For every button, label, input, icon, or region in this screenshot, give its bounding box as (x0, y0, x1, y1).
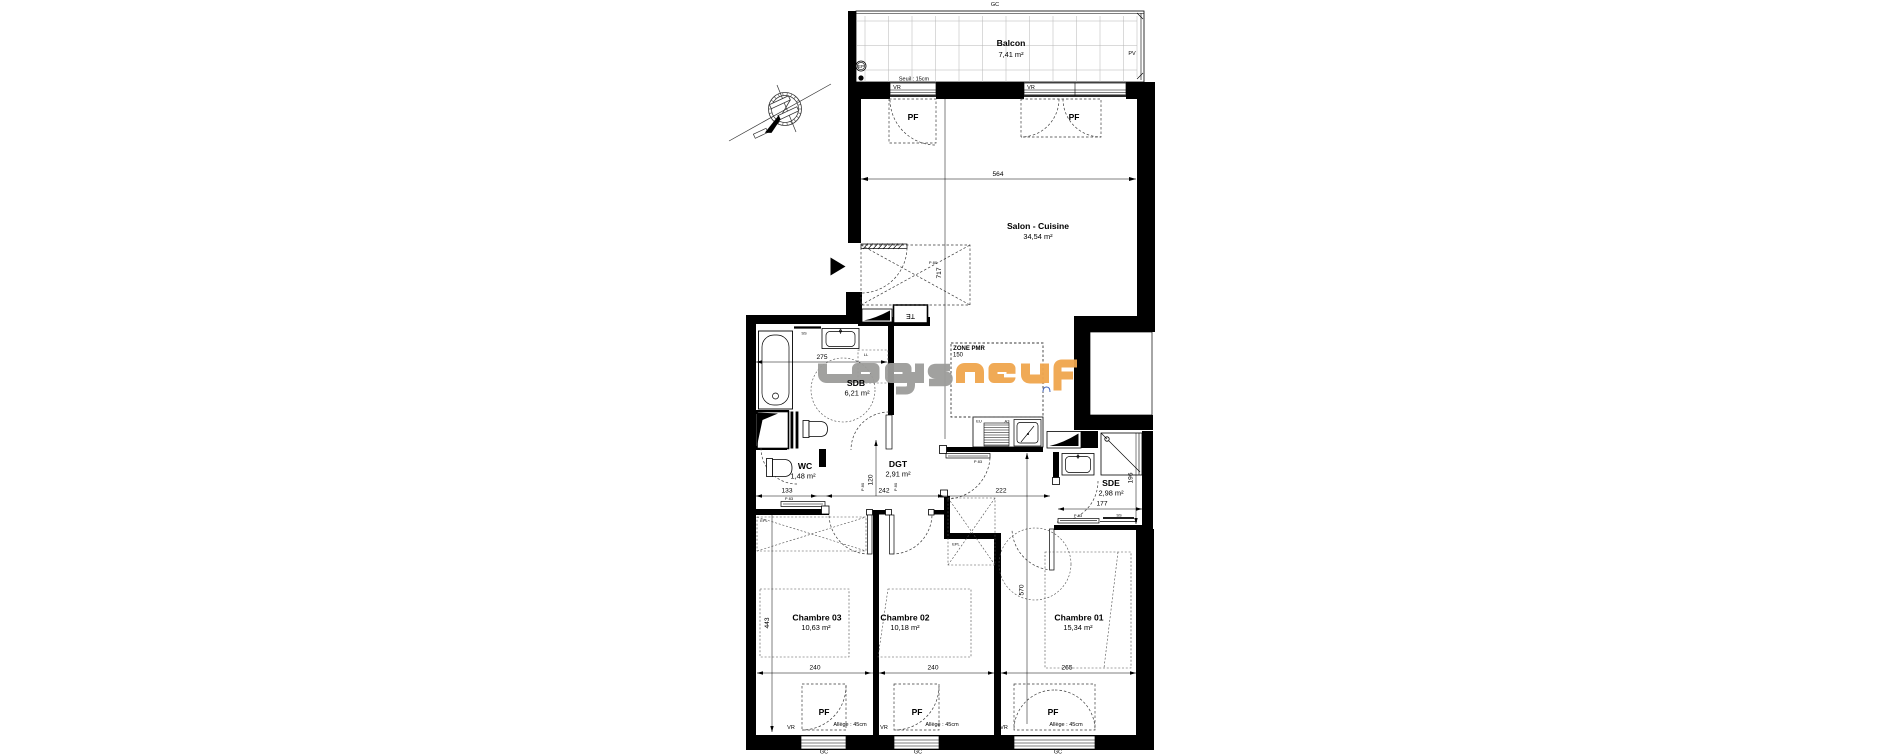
svg-text:Seuil : 15cm: Seuil : 15cm (899, 77, 930, 83)
svg-text:2,98 m²: 2,98 m² (1098, 489, 1124, 498)
svg-text:VR: VR (787, 725, 795, 731)
svg-text:PF: PF (1048, 707, 1059, 717)
svg-text:P 80: P 80 (929, 260, 938, 265)
svg-text:177: 177 (1096, 501, 1107, 508)
svg-text:133: 133 (781, 488, 792, 495)
svg-text:PV: PV (1128, 51, 1136, 57)
svg-text:222: 222 (995, 488, 1006, 495)
svg-text:PF: PF (819, 707, 830, 717)
svg-text:SDB: SDB (847, 378, 865, 388)
svg-text:GC: GC (991, 2, 999, 8)
svg-text:P 80: P 80 (860, 482, 865, 491)
svg-text:DGT: DGT (889, 459, 908, 469)
svg-text:Allège : 45cm: Allège : 45cm (925, 722, 959, 728)
svg-text:265: 265 (1061, 665, 1072, 672)
svg-text:P 80: P 80 (893, 482, 898, 491)
svg-text:275: 275 (816, 354, 827, 361)
svg-text:P 83: P 83 (974, 459, 983, 464)
svg-text:VR: VR (1000, 725, 1008, 731)
svg-text:242: 242 (878, 488, 889, 495)
svg-text:VR: VR (1027, 85, 1035, 91)
svg-text:Salon - Cuisine: Salon - Cuisine (1007, 221, 1069, 231)
svg-text:EPL: EPL (760, 518, 768, 523)
svg-text:TE: TE (906, 312, 915, 319)
svg-text:LL: LL (864, 352, 869, 357)
svg-text:15,34 m²: 15,34 m² (1063, 623, 1093, 632)
svg-text:Allège : 45cm: Allège : 45cm (1049, 722, 1083, 728)
svg-text:150: 150 (953, 353, 964, 359)
svg-text:EPL: EPL (952, 542, 960, 547)
svg-text:2,91 m²: 2,91 m² (885, 470, 911, 479)
svg-text:SS: SS (1116, 513, 1122, 518)
svg-text:VR: VR (893, 85, 901, 91)
svg-text:240: 240 (809, 665, 820, 672)
svg-text:PF: PF (908, 112, 919, 122)
svg-text:VR: VR (880, 725, 888, 731)
svg-text:Chambre 02: Chambre 02 (880, 613, 929, 623)
svg-text:240: 240 (927, 665, 938, 672)
svg-text:Balcon: Balcon (997, 38, 1026, 48)
svg-text:P 83: P 83 (1074, 513, 1083, 518)
svg-text:P 83: P 83 (785, 496, 794, 501)
svg-text:PF: PF (1069, 112, 1080, 122)
svg-text:PF: PF (912, 707, 923, 717)
svg-text:34,54 m²: 34,54 m² (1023, 232, 1053, 241)
svg-text:Chambre 03: Chambre 03 (792, 613, 841, 623)
svg-text:10,18 m²: 10,18 m² (890, 623, 920, 632)
svg-text:10,63 m²: 10,63 m² (801, 623, 831, 632)
svg-text:570: 570 (1019, 584, 1026, 595)
svg-text:1,48 m²: 1,48 m² (790, 472, 816, 481)
svg-text:120: 120 (868, 474, 875, 485)
svg-text:EU: EU (976, 419, 982, 424)
svg-text:EP: EP (858, 64, 864, 69)
svg-text:GC: GC (820, 750, 828, 754)
svg-text:7,41 m²: 7,41 m² (998, 50, 1024, 59)
svg-text:6,21 m²: 6,21 m² (844, 389, 870, 398)
svg-text:564: 564 (992, 171, 1003, 178)
svg-text:Chambre 01: Chambre 01 (1054, 613, 1103, 623)
svg-text:GC: GC (914, 750, 922, 754)
svg-text:GC: GC (1054, 750, 1062, 754)
svg-text:SS: SS (801, 331, 807, 336)
svg-text:Allège : 45cm: Allège : 45cm (833, 722, 867, 728)
svg-text:443: 443 (764, 617, 771, 628)
svg-text:196: 196 (1128, 472, 1135, 483)
svg-text:WC: WC (798, 461, 812, 471)
svg-text:SDE: SDE (1102, 478, 1120, 488)
svg-text:ZONE PMR: ZONE PMR (953, 346, 985, 352)
svg-text:717: 717 (936, 267, 943, 278)
